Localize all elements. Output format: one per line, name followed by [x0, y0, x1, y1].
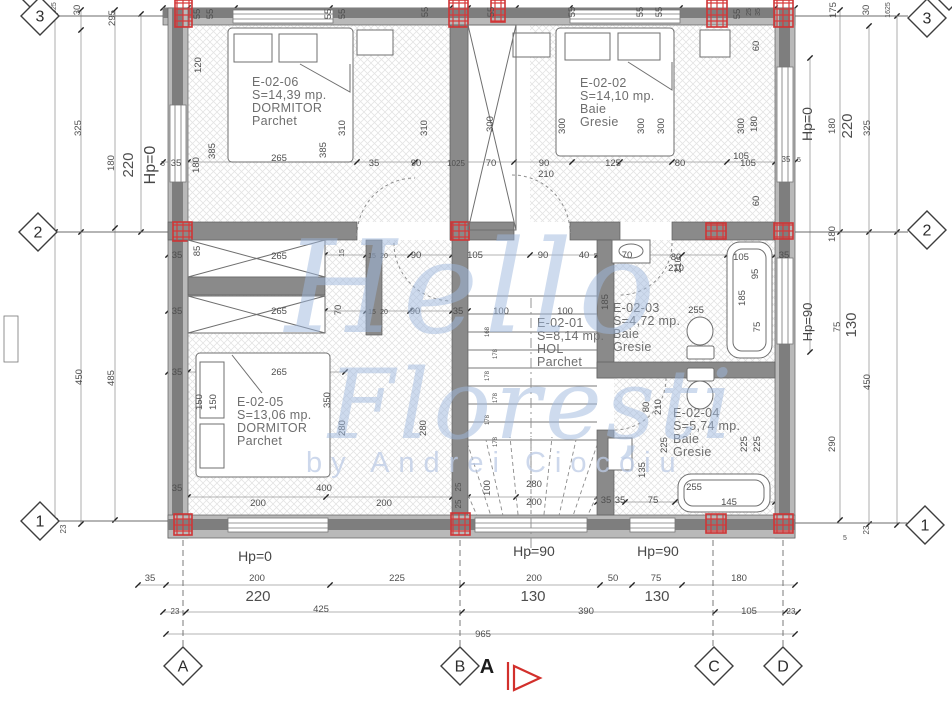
dimension-label: 145	[721, 497, 737, 508]
dimension-label: 450	[862, 374, 873, 390]
dimension-label: 35	[601, 495, 612, 506]
dimension-label: 35	[615, 495, 626, 506]
dimension-label: 85	[192, 246, 203, 257]
dimension-label: 120	[193, 57, 204, 73]
grid-bubble-label: 2	[34, 225, 43, 242]
room-label: E-02-05	[237, 395, 284, 409]
dimension-label: 35	[755, 8, 762, 16]
column	[707, 0, 727, 27]
dimension-label: 35	[369, 158, 380, 169]
dimension-label: 200	[526, 573, 542, 584]
dimension-label: 220	[839, 113, 856, 138]
room-label: Parchet	[237, 434, 282, 448]
dimension-label: 1025	[447, 159, 465, 168]
dimension-label: 265	[271, 153, 287, 164]
window	[777, 258, 793, 344]
dimension-label: 105	[740, 158, 756, 169]
grid-bubble: 2	[908, 211, 946, 249]
column	[175, 0, 192, 27]
grid-bubble-label: 1	[921, 518, 930, 535]
room-label: DORMITOR	[237, 421, 307, 435]
dimension-label: 225	[739, 436, 750, 452]
dimension-label: 55	[420, 7, 431, 18]
window	[228, 518, 328, 532]
dimension-label: 105	[741, 606, 757, 617]
window	[170, 105, 186, 182]
dimension-label: 50	[608, 573, 619, 584]
dimension-label: 55	[732, 9, 743, 20]
room-label: Gresie	[580, 115, 619, 129]
window	[777, 67, 793, 182]
dimension-label: 300	[485, 116, 496, 132]
dimension-label: 95	[750, 269, 761, 280]
dimension-label: 200	[249, 573, 265, 584]
dimension-label: 55	[205, 9, 216, 20]
dimension-label: 175	[828, 2, 839, 18]
window	[630, 518, 675, 532]
dimension-label: 210	[673, 257, 684, 273]
nightstand	[513, 33, 550, 57]
hp-label: Hp=90	[513, 543, 555, 559]
dimension-label: 390	[578, 606, 594, 617]
dimension-label: 220	[120, 152, 137, 177]
hp-label: Hp=0	[799, 107, 815, 141]
nightstand	[700, 30, 730, 57]
dimension-label: 180	[827, 226, 838, 242]
dimension-label: 25	[746, 8, 753, 16]
exterior-attachment	[4, 316, 18, 362]
section-marker: A	[480, 656, 540, 690]
dimension-label: 70	[486, 158, 497, 169]
dimension-label: 30	[72, 5, 83, 16]
dimension-label: 280	[526, 479, 542, 490]
grid-bubble: D	[764, 647, 802, 685]
dimension-label: 210	[538, 169, 554, 180]
grid-bubble: B	[441, 647, 479, 685]
dimension-label: 105	[733, 252, 749, 263]
dimension-label: 30	[861, 5, 872, 16]
dimension-label: 200	[526, 497, 542, 508]
dimension-label: 60	[751, 196, 762, 207]
dimension-label: 23	[862, 525, 871, 534]
room-label: E-02-06	[252, 75, 299, 89]
dimension-label: 75	[832, 322, 843, 333]
dimension-label: 200	[250, 498, 266, 509]
dimension-label: 300	[656, 118, 667, 134]
dimension-label: 325	[862, 120, 873, 136]
column	[174, 514, 192, 535]
dimension-label: 35	[172, 306, 183, 317]
dimension-label: 60	[751, 41, 762, 52]
dimension-label: 5	[797, 157, 801, 164]
room-label: E-02-02	[580, 76, 627, 90]
room-label: S=14,39 mp.	[252, 88, 327, 102]
room-label: DORMITOR	[252, 101, 322, 115]
dimension-label: 35	[172, 250, 183, 261]
watermark-line1: Hello	[283, 214, 661, 363]
dimension-label: 90	[411, 158, 422, 169]
dimension-label: 25	[454, 499, 463, 508]
grid-bubble-label: 2	[923, 223, 932, 240]
dimension-label: 300	[736, 118, 747, 134]
grid-bubble: A	[164, 647, 202, 685]
dimension-label: 310	[337, 120, 348, 136]
dimension-label: 75	[752, 322, 763, 333]
dimension-label: 35	[172, 367, 183, 378]
room-label: Baie	[580, 102, 606, 116]
room-label: Parchet	[252, 114, 297, 128]
section-marker-label: A	[480, 656, 494, 678]
dimension-label: 55	[323, 9, 334, 20]
dimension-label: 185	[737, 290, 748, 306]
dimension-label: 255	[688, 305, 704, 316]
dimension-label: 220	[245, 588, 270, 605]
floor-plan-canvas: 5555555555555555555525351625302951753016…	[0, 0, 952, 720]
wall	[450, 25, 468, 240]
grid-bubble: 3	[908, 0, 946, 37]
dimension-label: 35	[779, 250, 790, 261]
dimension-label: 255	[686, 482, 702, 493]
window	[233, 10, 333, 23]
dimension-label: 80	[675, 158, 686, 169]
column	[774, 223, 793, 239]
dimension-label: 265	[271, 367, 287, 378]
grid-bubble-label: 1	[36, 514, 45, 531]
grid-bubble-label: 3	[36, 9, 45, 26]
grid-bubble: 1	[906, 506, 944, 544]
column	[774, 0, 793, 27]
dimension-label: 290	[827, 436, 838, 452]
grid-bubble-label: 4	[945, 0, 952, 1]
dimension-label: 35	[172, 483, 183, 494]
dimension-label: 23	[171, 607, 180, 616]
dimension-label: 965	[475, 629, 491, 640]
dimension-label: 385	[207, 143, 218, 159]
grid-bubble-label: A	[178, 659, 189, 676]
dimension-label: 400	[316, 483, 332, 494]
dimension-label: 35	[145, 573, 156, 584]
room-label: S=14,10 mp.	[580, 89, 655, 103]
dimension-label: 180	[191, 157, 202, 173]
hp-label: Hp=0	[238, 548, 272, 564]
dimension-label: 180	[731, 573, 747, 584]
dimension-label: 5	[843, 535, 847, 542]
dimension-label: 55	[486, 7, 497, 18]
dimension-label: 75	[648, 495, 659, 506]
dimension-label: 225	[752, 436, 763, 452]
dimension-label: 225	[389, 573, 405, 584]
dimension-label: 150	[194, 394, 205, 410]
section-arrow-icon	[508, 662, 540, 690]
dimension-label: 300	[557, 118, 568, 134]
dimension-label: 130	[843, 312, 860, 337]
room-label: S=13,06 mp.	[237, 408, 312, 422]
column	[449, 0, 468, 27]
dimension-label: 450	[74, 369, 85, 385]
wall-core	[172, 8, 183, 538]
grid-bubble: 1	[21, 502, 59, 540]
dimension-label: 295	[107, 10, 118, 26]
column	[451, 513, 470, 535]
dimension-label: 25	[454, 482, 463, 491]
dimension-label: 200	[376, 498, 392, 509]
dimension-label: 35	[171, 158, 182, 169]
dimension-label: 100	[482, 480, 493, 496]
dimension-label: 35	[782, 155, 791, 164]
dimension-label: 55	[654, 7, 665, 18]
watermark-line2: Florești	[326, 349, 736, 461]
dimension-label: 23	[787, 607, 796, 616]
dimension-label: 180	[827, 118, 838, 134]
dimension-label: 55	[192, 9, 203, 20]
column	[706, 514, 726, 533]
dimension-label: 180	[106, 155, 117, 171]
dimension-label: 55	[567, 7, 578, 18]
dimension-label: 150	[208, 394, 219, 410]
grid-bubble-label: B	[455, 659, 466, 676]
hp-label: Hp=0	[142, 146, 159, 185]
grid-bubble-label: C	[708, 659, 720, 676]
dimension-label: 310	[419, 120, 430, 136]
dimension-label: 300	[636, 118, 647, 134]
dimension-label: 75	[651, 573, 662, 584]
dimension-label: 325	[73, 120, 84, 136]
dimension-label: 425	[313, 604, 329, 615]
nightstand	[357, 30, 393, 55]
watermark-byline: by Andrei Ciocoiu	[306, 447, 685, 479]
column	[774, 514, 793, 533]
dimension-label: 130	[644, 588, 669, 605]
grid-bubble: 2	[19, 213, 57, 251]
dimension-label: 180	[749, 116, 760, 132]
floor-plan-page: 5555555555555555555525351625302951753016…	[0, 0, 952, 720]
dimension-label: 385	[318, 142, 329, 158]
dimension-label: 485	[106, 370, 117, 386]
dimension-label: 90	[539, 158, 550, 169]
grid-bubble-label: 3	[923, 11, 932, 28]
dimension-label: 125	[605, 158, 621, 169]
column	[706, 223, 726, 239]
dimension-label: 5	[161, 161, 165, 168]
dimension-label: 55	[635, 7, 646, 18]
hp-label: Hp=90	[800, 303, 815, 342]
grid-bubble: C	[695, 647, 733, 685]
column	[173, 222, 192, 241]
grid-bubble-label: D	[777, 659, 789, 676]
dimension-label: 23	[59, 524, 68, 533]
hp-label: Hp=90	[637, 543, 679, 559]
dimension-label: 1625	[885, 2, 892, 18]
dimension-label: 130	[520, 588, 545, 605]
dimension-label: 55	[337, 9, 348, 20]
